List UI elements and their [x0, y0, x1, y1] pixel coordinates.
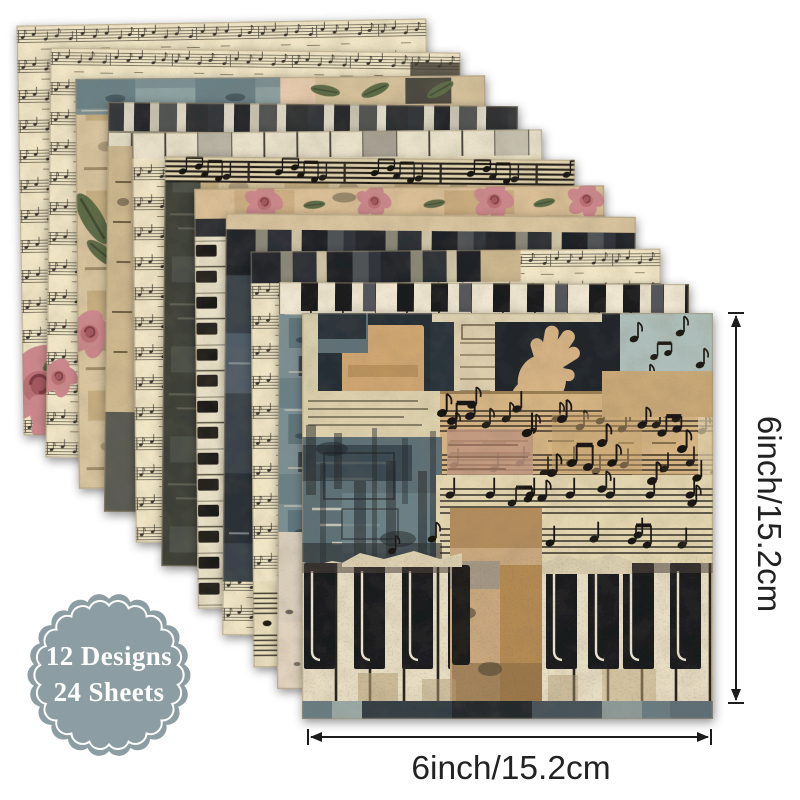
svg-text:6inch/15.2cm: 6inch/15.2cm: [751, 416, 788, 612]
svg-text:6inch/15.2cm: 6inch/15.2cm: [411, 750, 610, 787]
svg-text:24 Sheets: 24 Sheets: [54, 677, 165, 707]
svg-text:12 Designs: 12 Designs: [46, 641, 172, 671]
